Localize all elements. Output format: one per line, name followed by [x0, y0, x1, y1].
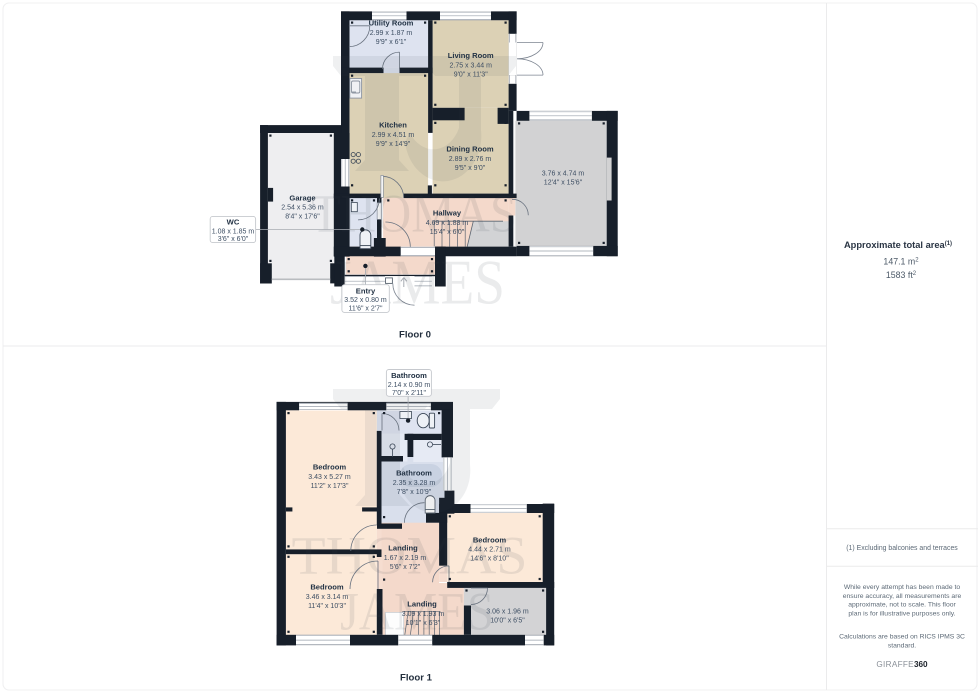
svg-text:3.46 x 3.14 m: 3.46 x 3.14 m	[306, 594, 349, 601]
svg-text:1.08 x 1.85 m: 1.08 x 1.85 m	[212, 228, 255, 235]
svg-text:THOMAS: THOMAS	[311, 184, 517, 244]
svg-text:14'6" x 8'10": 14'6" x 8'10"	[470, 556, 509, 563]
svg-text:3'6" x 6'0": 3'6" x 6'0"	[218, 236, 249, 243]
svg-text:3.06 x 1.96 m: 3.06 x 1.96 m	[486, 609, 529, 616]
svg-text:3.52 x 0.80 m: 3.52 x 0.80 m	[344, 297, 387, 304]
svg-text:7'0" x 2'11": 7'0" x 2'11"	[392, 390, 426, 397]
svg-text:Floor 0: Floor 0	[399, 330, 431, 341]
svg-text:11'6" x 2'7": 11'6" x 2'7"	[349, 305, 383, 312]
svg-text:2.99 x 4.51 m: 2.99 x 4.51 m	[372, 132, 415, 139]
svg-text:Living Room: Living Room	[448, 51, 494, 60]
svg-text:Hallway: Hallway	[433, 209, 462, 218]
svg-text:WC: WC	[227, 218, 240, 227]
svg-text:2.35 x 3.28 m: 2.35 x 3.28 m	[393, 480, 436, 487]
svg-text:9'0" x 11'3": 9'0" x 11'3"	[454, 71, 488, 78]
svg-text:plan is for illustrative purpo: plan is for illustrative purposes only.	[848, 610, 955, 617]
svg-text:11'4" x 10'3": 11'4" x 10'3"	[308, 603, 346, 610]
svg-text:Bedroom: Bedroom	[473, 535, 507, 544]
svg-text:(1) Excluding balconies and te: (1) Excluding balconies and terraces	[846, 545, 958, 552]
svg-text:Bedroom: Bedroom	[313, 463, 347, 472]
svg-text:15'4" x 6'0": 15'4" x 6'0"	[430, 229, 465, 236]
svg-text:Kitchen: Kitchen	[379, 121, 407, 130]
svg-text:9'9" x 14'9": 9'9" x 14'9"	[376, 141, 411, 148]
svg-text:Bathroom: Bathroom	[391, 371, 427, 380]
svg-text:8'4" x 17'6": 8'4" x 17'6"	[285, 214, 320, 221]
svg-text:Dining Room: Dining Room	[446, 145, 493, 154]
svg-text:5'6" x 7'2": 5'6" x 7'2"	[390, 564, 421, 571]
svg-text:3.09 x 1.93 m: 3.09 x 1.93 m	[402, 611, 445, 618]
svg-text:1583 ft2: 1583 ft2	[886, 270, 917, 280]
svg-text:9'9" x 6'1": 9'9" x 6'1"	[376, 39, 407, 46]
svg-text:7'8" x 10'9": 7'8" x 10'9"	[397, 489, 432, 496]
svg-text:2.99 x 1.87 m: 2.99 x 1.87 m	[370, 30, 413, 37]
svg-text:While every attempt has been m: While every attempt has been made to	[844, 584, 961, 591]
svg-text:Landing: Landing	[388, 544, 418, 553]
svg-text:2.89 x 2.76 m: 2.89 x 2.76 m	[449, 156, 492, 163]
svg-text:standard.: standard.	[888, 642, 916, 649]
svg-text:4.69 x 1.83 m: 4.69 x 1.83 m	[426, 220, 469, 227]
svg-text:GIRAFFE360: GIRAFFE360	[876, 660, 928, 669]
svg-text:Calculations are based on RICS: Calculations are based on RICS IPMS 3C	[839, 634, 965, 641]
svg-text:147.1 m2: 147.1 m2	[883, 257, 919, 267]
svg-text:3.76 x 4.74 m: 3.76 x 4.74 m	[542, 171, 585, 178]
svg-text:Landing: Landing	[407, 600, 437, 609]
svg-text:Bathroom: Bathroom	[396, 469, 432, 478]
svg-text:3.43 x 5.27 m: 3.43 x 5.27 m	[308, 474, 351, 481]
svg-text:Utility Room: Utility Room	[369, 19, 414, 28]
svg-text:Entry: Entry	[356, 286, 376, 295]
svg-text:Bedroom: Bedroom	[310, 583, 344, 592]
svg-text:2.75 x 3.44 m: 2.75 x 3.44 m	[449, 62, 492, 69]
svg-text:2.54 x 5.36 m: 2.54 x 5.36 m	[281, 205, 324, 212]
svg-text:9'5" x 9'0": 9'5" x 9'0"	[455, 165, 486, 172]
svg-text:2.14 x 0.90 m: 2.14 x 0.90 m	[388, 382, 431, 389]
svg-text:4.44 x 2.71 m: 4.44 x 2.71 m	[468, 547, 511, 554]
svg-text:ensure accuracy, all measureme: ensure accuracy, all measurements are	[843, 593, 962, 600]
svg-text:11'2" x 17'3": 11'2" x 17'3"	[311, 483, 349, 490]
svg-text:Garage: Garage	[289, 193, 315, 202]
svg-text:10'0" x 6'5": 10'0" x 6'5"	[490, 618, 525, 625]
svg-text:1.67 x 2.19 m: 1.67 x 2.19 m	[384, 555, 427, 562]
svg-text:Floor 1: Floor 1	[400, 672, 433, 683]
svg-text:10'1" x 6'3": 10'1" x 6'3"	[406, 620, 441, 627]
svg-text:Approximate total area(1): Approximate total area(1)	[844, 240, 952, 250]
svg-text:approximate, not to scale. Thi: approximate, not to scale. This floor	[848, 602, 956, 609]
svg-text:12'4" x 15'6": 12'4" x 15'6"	[544, 180, 583, 187]
